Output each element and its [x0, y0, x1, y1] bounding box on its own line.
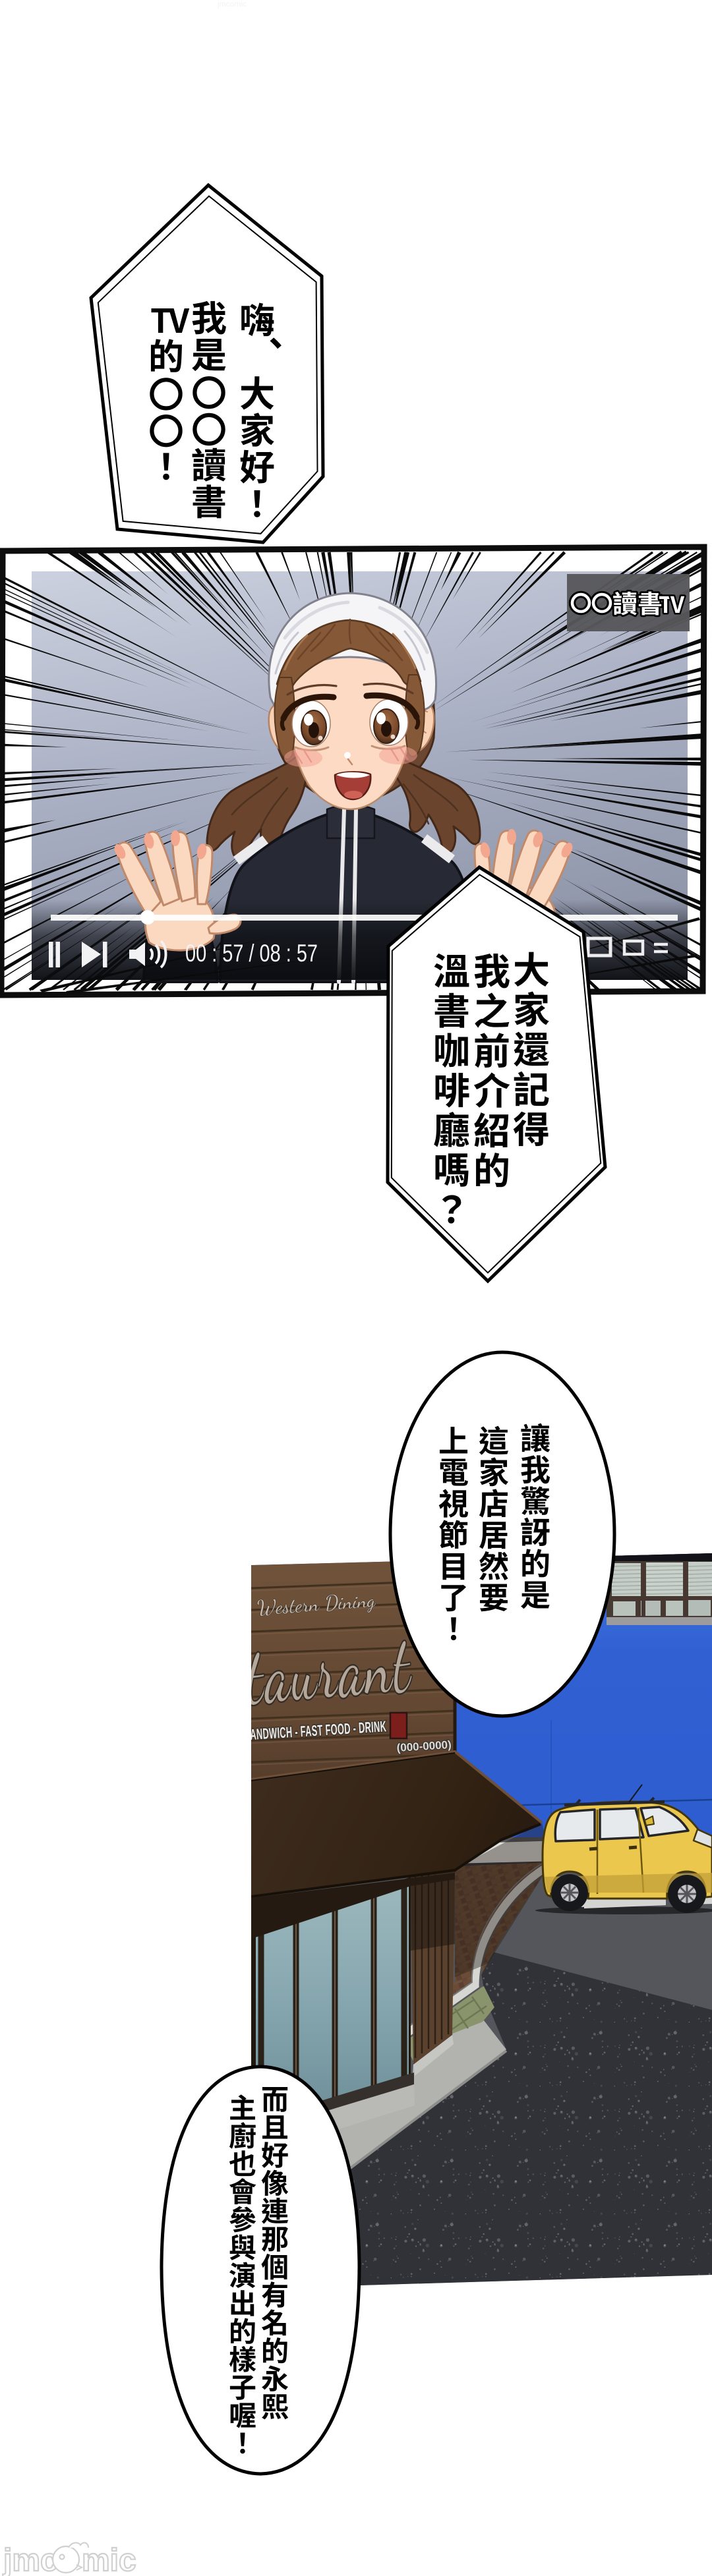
svg-text:jmc: jmc [3, 2543, 58, 2576]
svg-text:mic: mic [82, 2543, 136, 2576]
svg-text:00 : 57 / 08 : 57: 00 : 57 / 08 : 57 [185, 940, 318, 967]
svg-text:jmcomic: jmcomic [217, 0, 247, 9]
